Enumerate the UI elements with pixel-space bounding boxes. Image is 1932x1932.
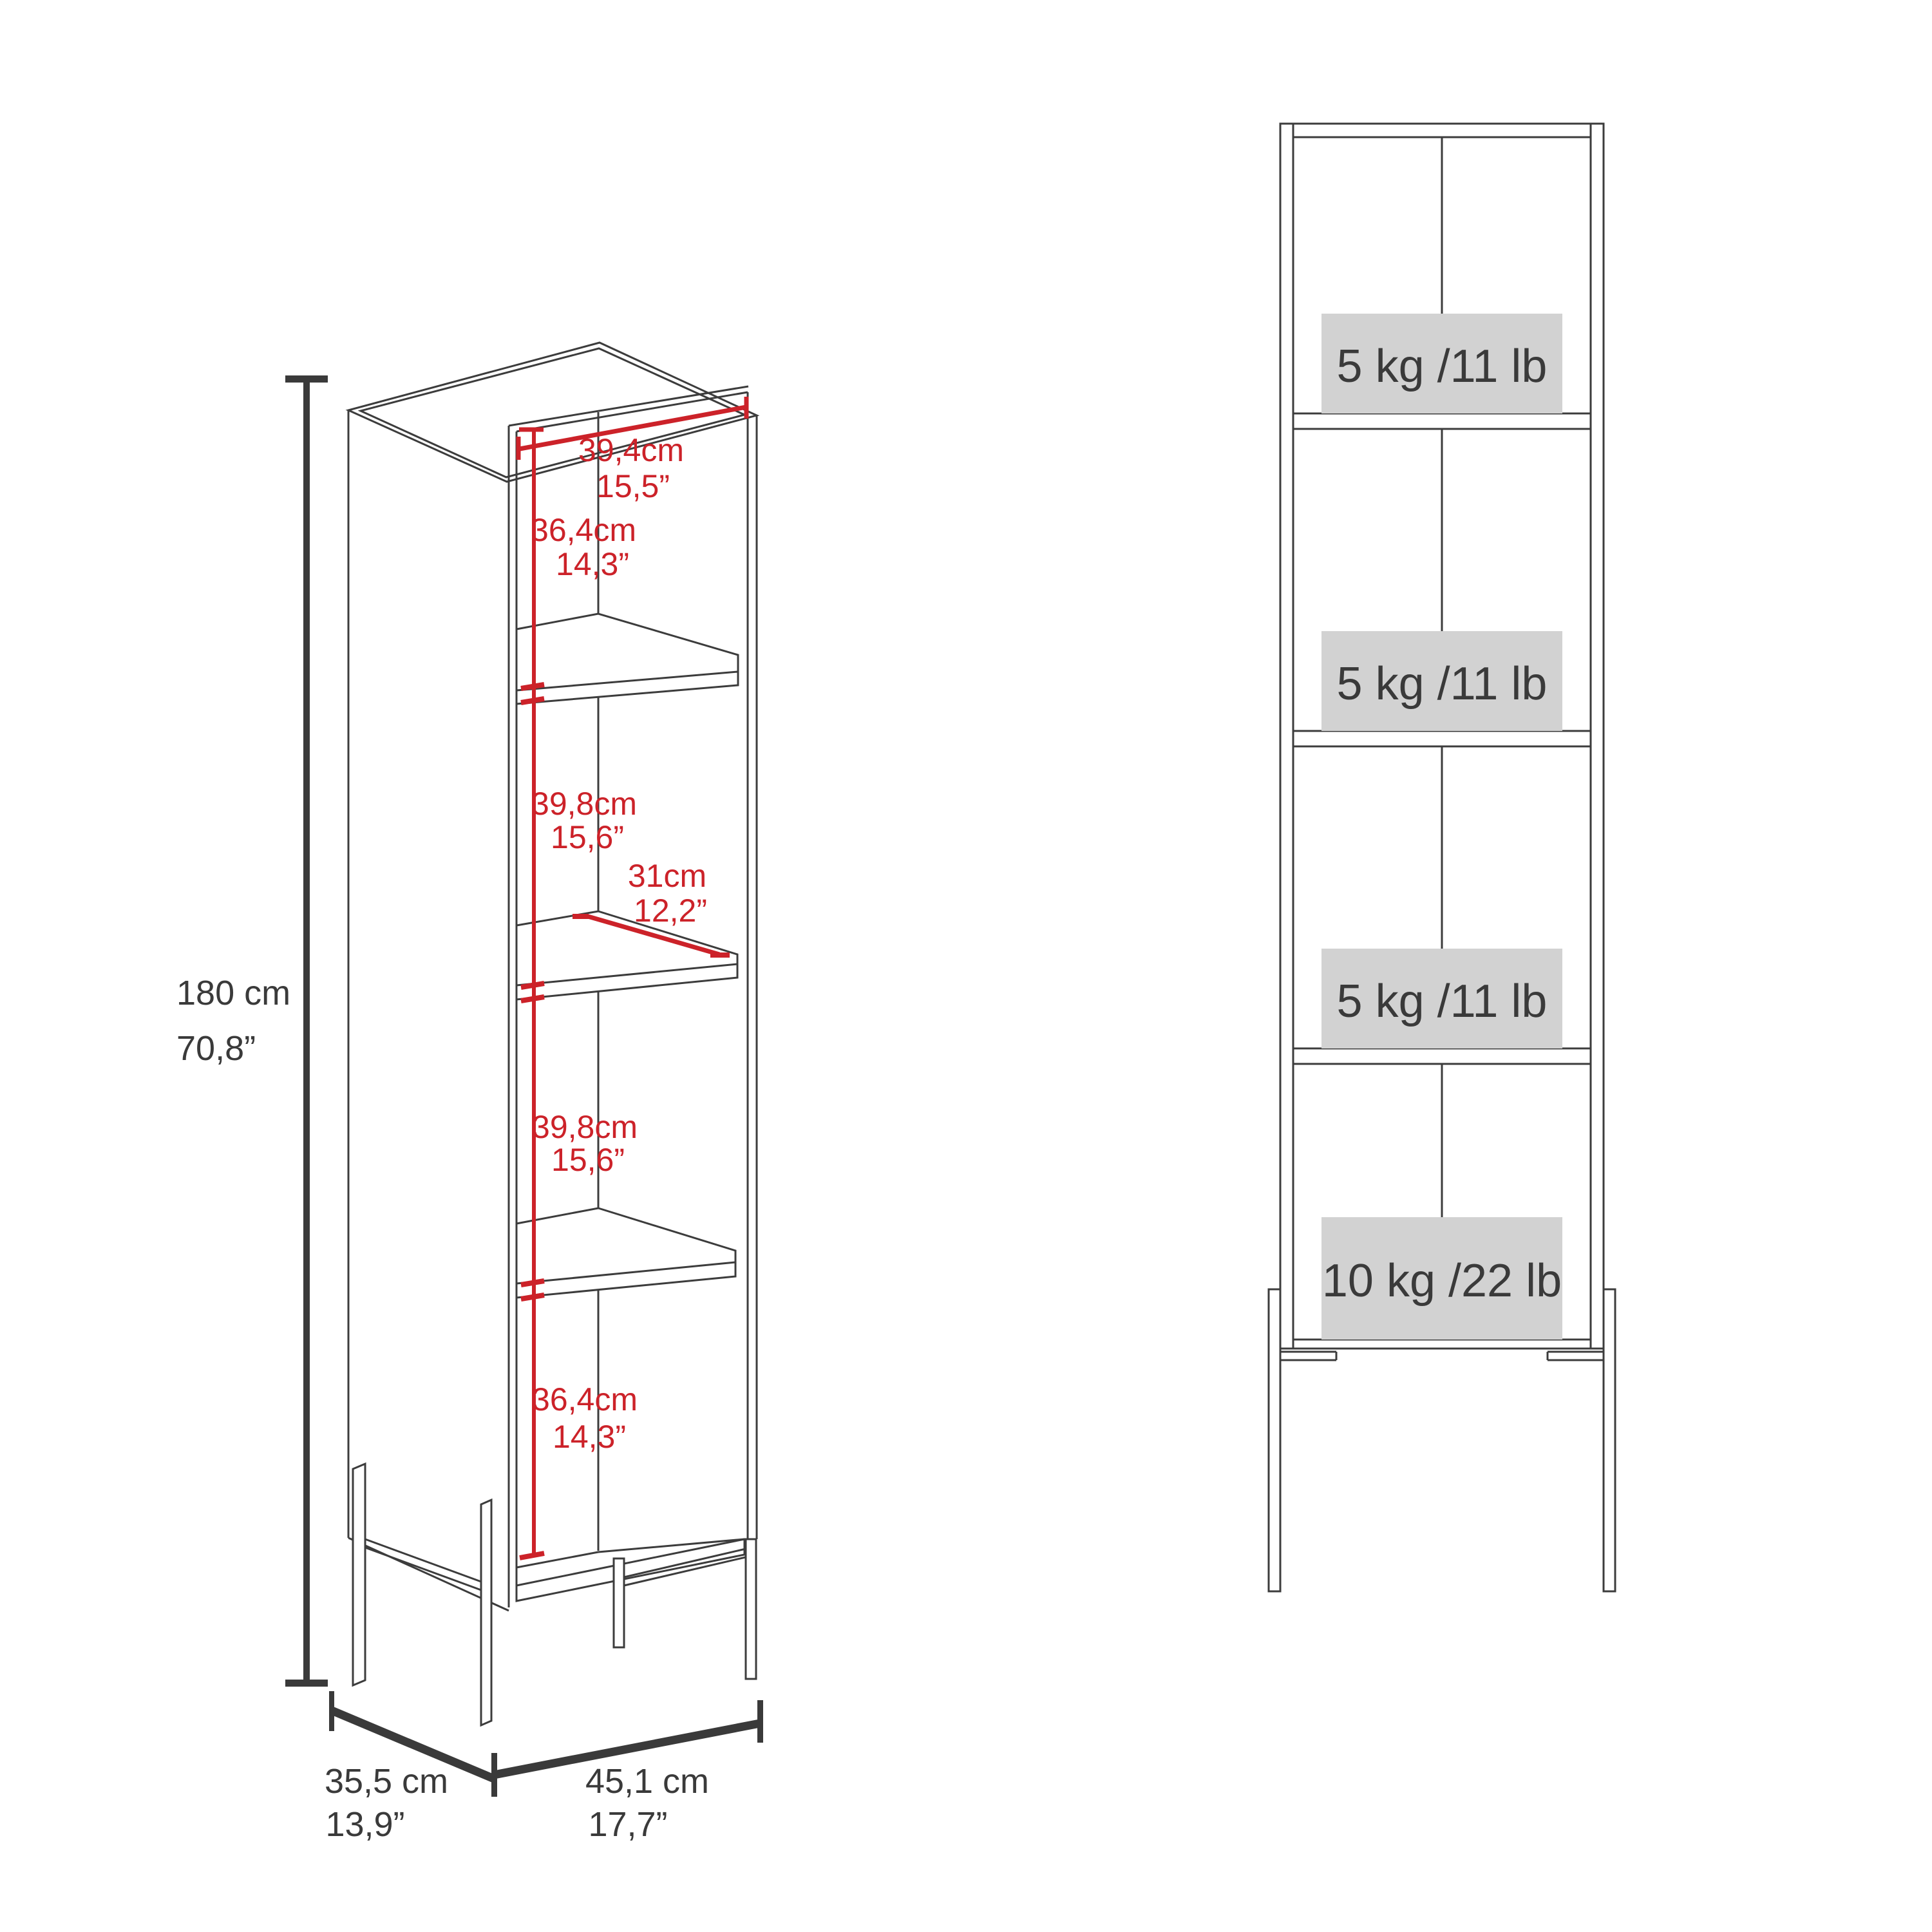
shelf-depth-cm-label: 31cm [628,858,706,894]
base-frame [353,1464,756,1725]
load-badge: 5 kg /11 lb [1321,949,1562,1048]
width-in-label: 17,7” [588,1805,667,1844]
front-cabinet-outline [1280,124,1604,1349]
load-badge: 10 kg /22 lb [1321,1217,1562,1340]
section1-in-label: 14,3” [556,546,629,582]
width-cm-label: 45,1 cm [585,1762,709,1801]
front-right-leg [481,1500,491,1725]
load-label-1: 5 kg /11 lb [1337,341,1548,392]
front-view-left-leg [1269,1289,1280,1591]
load-badge: 5 kg /11 lb [1321,631,1562,731]
load-label-3: 5 kg /11 lb [1337,976,1548,1027]
lower-shelf [516,1208,735,1298]
shelf-depth-in-label: 12,2” [634,893,707,929]
top-width-in-label: 15,5” [596,468,670,504]
section4-in-label: 14,3” [553,1419,626,1455]
height-cm-label: 180 cm [176,974,290,1012]
depth-in-label: 13,9” [325,1805,404,1844]
load-badge: 5 kg /11 lb [1321,314,1562,413]
dimension-diagram: 39,4cm 15,5” 36,4cm 14,3” 39,8cm 15,6” 3… [0,0,1932,1932]
height-dimension-line [285,375,328,1687]
bottom-panel [516,1539,744,1601]
section3-in-label: 15,6” [551,1142,625,1178]
section2-in-label: 15,6” [551,819,624,855]
top-width-cm-label: 39,4cm [578,432,684,468]
perspective-view: 39,4cm 15,5” 36,4cm 14,3” 39,8cm 15,6” 3… [176,343,763,1844]
depth-cm-label: 35,5 cm [325,1762,448,1801]
front-left-leg [353,1464,365,1685]
section2-cm-label: 39,8cm [531,786,637,822]
load-label-2: 5 kg /11 lb [1337,658,1548,710]
height-in-label: 70,8” [176,1029,256,1068]
load-label-4: 10 kg /22 lb [1322,1255,1562,1307]
top-shelf [516,614,738,704]
back-leg [614,1558,624,1647]
right-leg [746,1539,756,1679]
section4-cm-label: 36,4cm [532,1381,638,1417]
section1-cm-label: 36,4cm [531,512,636,548]
section3-cm-label: 39,8cm [532,1109,638,1145]
front-view-right-leg [1604,1289,1615,1591]
front-view: 5 kg /11 lb 5 kg /11 lb 5 kg /11 lb 10 k… [1269,124,1615,1591]
